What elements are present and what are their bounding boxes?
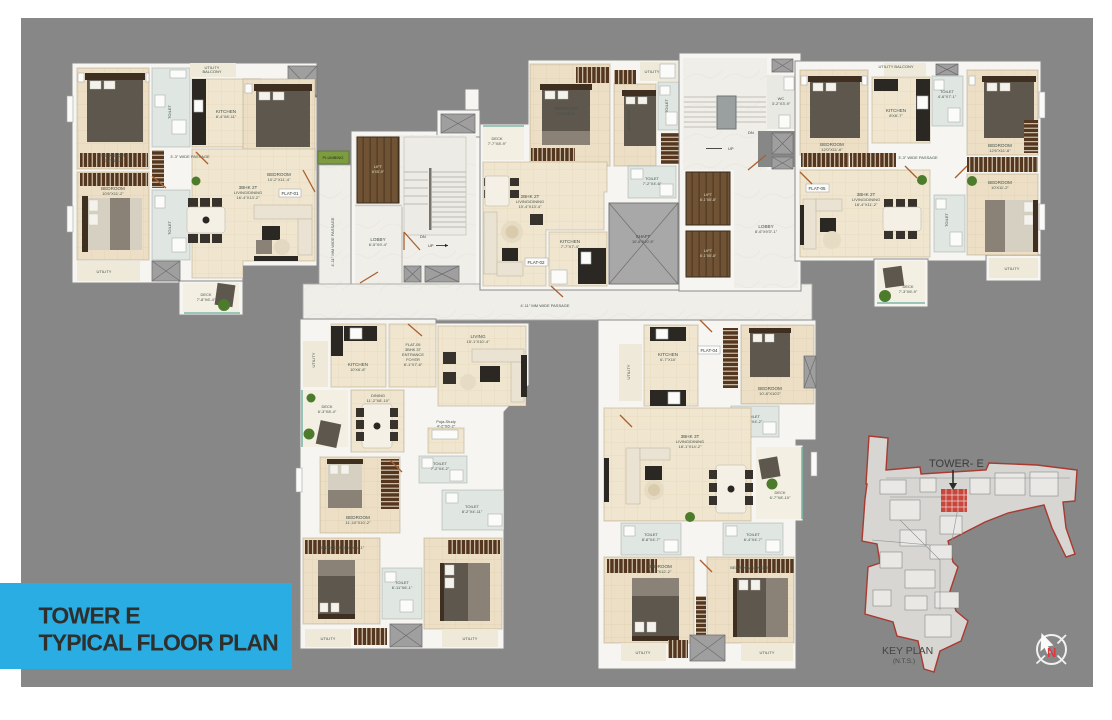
- svg-text:8'-6"X4'-7": 8'-6"X4'-7": [642, 537, 661, 542]
- svg-text:TOILET: TOILET: [944, 212, 949, 226]
- svg-text:8'-4"X8'-11": 8'-4"X8'-11": [216, 114, 237, 119]
- svg-text:12'0"X9'-0": 12'0"X9'-0": [556, 111, 576, 116]
- svg-text:TOWER E: TOWER E: [39, 603, 141, 629]
- svg-text:UTILITY BALCONY: UTILITY BALCONY: [878, 64, 913, 69]
- svg-text:6'X5'-9": 6'X5'-9": [372, 170, 385, 174]
- svg-text:BEDROOM: BEDROOM: [626, 110, 631, 131]
- svg-text:6'-7"X8'-10": 6'-7"X8'-10": [770, 495, 791, 500]
- svg-text:LIFT: LIFT: [704, 192, 713, 197]
- svg-text:TOWER- E: TOWER- E: [929, 458, 984, 470]
- svg-text:11'-2"X12'-2": 11'-2"X12'-2": [649, 569, 672, 574]
- svg-text:11'-2"X8'-10": 11'-2"X8'-10": [367, 398, 390, 403]
- svg-text:UTILITY: UTILITY: [1005, 266, 1020, 271]
- svg-text:6'-7"X10': 6'-7"X10': [660, 357, 676, 362]
- svg-text:FLAT-05: FLAT-05: [809, 186, 826, 191]
- svg-text:6'-4"X4'-7": 6'-4"X4'-7": [744, 537, 763, 542]
- svg-text:BEDROOM 11'X10'-9": BEDROOM 11'X10'-9": [730, 565, 770, 570]
- svg-text:BALCONY: BALCONY: [202, 69, 221, 74]
- svg-text:UTILITY: UTILITY: [311, 352, 316, 367]
- svg-text:3'-3" WIDE PASSAGE: 3'-3" WIDE PASSAGE: [898, 155, 938, 160]
- svg-text:TOILET: TOILET: [167, 104, 172, 118]
- svg-text:10'X11'-2": 10'X11'-2": [991, 185, 1009, 190]
- svg-text:UTILITY: UTILITY: [760, 650, 775, 655]
- svg-text:UTILITY: UTILITY: [463, 636, 478, 641]
- svg-text:LIFT: LIFT: [374, 164, 383, 169]
- svg-text:TOILET: TOILET: [664, 98, 669, 112]
- svg-text:16'-4"X11'-2": 16'-4"X11'-2": [855, 202, 878, 207]
- svg-text:4'-6"X7'-1": 4'-6"X7'-1": [938, 94, 957, 99]
- svg-text:BEDROOM 11'-4"X11'-1": BEDROOM 11'-4"X11'-1": [320, 545, 365, 550]
- svg-text:16'-4"X13'-2": 16'-4"X13'-2": [236, 195, 260, 200]
- svg-text:UP: UP: [728, 146, 734, 151]
- svg-text:12'6"X11'-6": 12'6"X11'-6": [102, 158, 124, 163]
- svg-text:UTILITY: UTILITY: [321, 636, 336, 641]
- svg-text:TOILET: TOILET: [167, 220, 172, 234]
- svg-text:8'-2"X4'-11": 8'-2"X4'-11": [462, 509, 483, 514]
- svg-text:FLAT-04: FLAT-04: [701, 348, 718, 353]
- svg-text:6'-3"X8'-4": 6'-3"X8'-4": [318, 409, 337, 414]
- svg-text:UP: UP: [428, 243, 434, 248]
- svg-text:7'-7"X7'-4": 7'-7"X7'-4": [561, 244, 580, 249]
- svg-text:4'-2"X6'-2": 4'-2"X6'-2": [437, 424, 456, 429]
- svg-text:11'-10"X10'-2": 11'-10"X10'-2": [346, 520, 372, 525]
- svg-text:N: N: [1047, 645, 1056, 660]
- svg-text:10'X6'-8": 10'X6'-8": [350, 367, 366, 372]
- svg-text:6'-1"X5'-8": 6'-1"X5'-8": [700, 198, 717, 202]
- svg-text:8'-1"X7'-6": 8'-1"X7'-6": [404, 362, 423, 367]
- svg-text:UTILITY: UTILITY: [626, 364, 631, 379]
- svg-text:DN: DN: [748, 130, 754, 135]
- svg-text:TYPICAL FLOOR PLAN: TYPICAL FLOOR PLAN: [39, 630, 279, 656]
- svg-text:KEY PLAN: KEY PLAN: [882, 645, 933, 657]
- svg-text:6'-11"X6'-1": 6'-11"X6'-1": [392, 585, 413, 590]
- svg-text:UTILITY: UTILITY: [636, 650, 651, 655]
- svg-text:10'-8"X10'2": 10'-8"X10'2": [759, 391, 781, 396]
- svg-text:8'-6"X9'3"-1": 8'-6"X9'3"-1": [755, 229, 778, 234]
- svg-text:4'-11" MM WIDE PASSAGE: 4'-11" MM WIDE PASSAGE: [330, 217, 335, 266]
- svg-text:6'-1"X5'-8": 6'-1"X5'-8": [700, 254, 717, 258]
- svg-text:3'-2"X3'-9": 3'-2"X3'-9": [772, 101, 791, 106]
- svg-text:8'X6'-7": 8'X6'-7": [889, 113, 903, 118]
- svg-text:12'6"X11'-6": 12'6"X11'-6": [989, 148, 1011, 153]
- svg-text:7'-2"X4'-6": 7'-2"X4'-6": [643, 181, 662, 186]
- svg-text:7'-3"X6'-9": 7'-3"X6'-9": [899, 289, 918, 294]
- svg-text:UTILITY: UTILITY: [645, 69, 660, 74]
- svg-text:LIFT: LIFT: [704, 248, 713, 253]
- svg-text:10'-6"X10'-5": 10'-6"X10'-5": [632, 240, 655, 244]
- svg-text:DN: DN: [420, 234, 426, 239]
- svg-text:10'6"X11'-2": 10'6"X11'-2": [102, 191, 124, 196]
- svg-text:PLUMBING: PLUMBING: [323, 155, 344, 160]
- svg-text:7'-8"X6'-4": 7'-8"X6'-4": [197, 297, 216, 302]
- svg-text:SHAFT: SHAFT: [636, 234, 651, 239]
- svg-text:18'-1"X14'-2": 18'-1"X14'-2": [678, 444, 702, 449]
- svg-text:10'-4"X13'-4": 10'-4"X13'-4": [518, 204, 542, 209]
- svg-text:7'-7"X8'-9": 7'-7"X8'-9": [488, 141, 507, 146]
- svg-text:7'-2"X4'-2": 7'-2"X4'-2": [431, 466, 450, 471]
- svg-text:FLAT-02: FLAT-02: [528, 260, 545, 265]
- svg-text:15'-1"X10'-4": 15'-1"X10'-4": [466, 339, 490, 344]
- svg-text:3'-3" WIDE PASSAGE: 3'-3" WIDE PASSAGE: [170, 154, 210, 159]
- svg-text:FLAT-01: FLAT-01: [282, 191, 299, 196]
- svg-text:4'-11" MM WIDE PASSAGE: 4'-11" MM WIDE PASSAGE: [520, 303, 569, 308]
- svg-text:UTILITY: UTILITY: [97, 269, 112, 274]
- svg-text:10'-2"X11'-4": 10'-2"X11'-4": [268, 177, 291, 182]
- svg-text:12'0"X11'-6": 12'0"X11'-6": [821, 147, 843, 152]
- svg-text:6'-5"X9'-4": 6'-5"X9'-4": [369, 242, 388, 247]
- svg-text:(N.T.S.): (N.T.S.): [893, 658, 915, 665]
